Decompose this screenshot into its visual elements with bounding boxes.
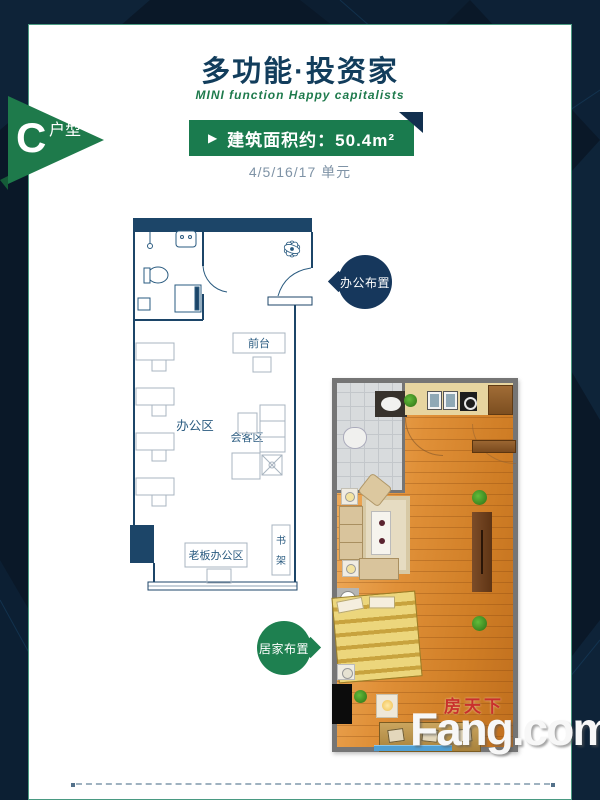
plant-icon xyxy=(472,490,487,505)
washer-icon xyxy=(460,392,477,411)
boss-chair xyxy=(207,569,231,583)
site-watermark: 房天下 Fang.com xyxy=(410,690,600,770)
pennant-fold xyxy=(0,176,8,190)
office-floorplan: 前台 办公区 会客区 老板办公区 书 架 xyxy=(125,210,325,602)
entry-door-leaf xyxy=(472,440,516,453)
sink-counter xyxy=(375,391,407,417)
pillow xyxy=(336,597,364,614)
entry-door-arc xyxy=(278,268,311,296)
play-icon: ▶ xyxy=(208,132,217,144)
bath-door-arc xyxy=(203,266,227,292)
watermark-logo: Fang.com xyxy=(410,702,600,756)
front-desk-label: 前台 xyxy=(248,336,270,350)
loveseat xyxy=(359,558,399,580)
area-label: 建筑面积约：50.4m² xyxy=(227,126,395,151)
side-table-lamp xyxy=(341,488,358,505)
area-banner: ▶ 建筑面积约：50.4m² xyxy=(189,120,414,156)
sofa xyxy=(339,506,363,560)
office-area-label: 办公区 xyxy=(176,418,214,433)
frame-icon xyxy=(428,392,441,409)
structural-column xyxy=(332,684,352,724)
type-suffix: 户型 xyxy=(49,121,81,139)
bookshelf-box xyxy=(272,525,290,575)
wall-frames xyxy=(428,392,457,409)
cushion xyxy=(387,728,405,743)
sink-icon xyxy=(176,231,196,247)
bookshelf-label-bottom: 架 xyxy=(276,555,286,567)
frame-icon xyxy=(444,392,457,409)
plant-icon xyxy=(354,690,367,703)
type-letter: C xyxy=(16,114,46,161)
divider-endpoint xyxy=(551,783,555,787)
pillow xyxy=(369,596,395,608)
page-title: 多功能·投资家 xyxy=(28,48,572,90)
office-desks xyxy=(136,343,174,506)
structural-column xyxy=(130,525,154,563)
poster-stage: 多功能·投资家 MINI function Happy capitalists … xyxy=(0,0,600,800)
divider-dashed xyxy=(76,783,550,785)
flower-icon xyxy=(283,240,301,258)
meeting-area-label: 会客区 xyxy=(231,430,264,444)
home-layout-tag: 居家布置 xyxy=(257,621,311,675)
front-desk-chair xyxy=(253,357,271,372)
coffee-table xyxy=(371,511,391,555)
sink-icon xyxy=(381,397,401,411)
bookshelf-label-top: 书 xyxy=(276,535,286,547)
top-wall xyxy=(133,218,312,232)
plant-icon xyxy=(404,394,417,407)
plant-icon xyxy=(472,616,487,631)
toilet-icon xyxy=(148,267,168,283)
type-flag: C 户型 xyxy=(0,86,112,202)
bathroom-fixtures xyxy=(138,231,201,312)
shower-icon xyxy=(148,244,153,249)
side-table-lamp xyxy=(342,560,359,577)
boss-office-label: 老板办公区 xyxy=(189,548,244,562)
lamp-table xyxy=(376,694,398,718)
corner-cabinet xyxy=(488,385,513,415)
entry-ledge xyxy=(268,297,312,305)
toilet-icon xyxy=(343,427,367,449)
nightstand xyxy=(337,664,355,680)
office-layout-tag: 办公布置 xyxy=(338,255,392,309)
tv-cabinet xyxy=(472,512,492,592)
shelf-icon xyxy=(138,298,150,310)
divider-endpoint xyxy=(71,783,75,787)
